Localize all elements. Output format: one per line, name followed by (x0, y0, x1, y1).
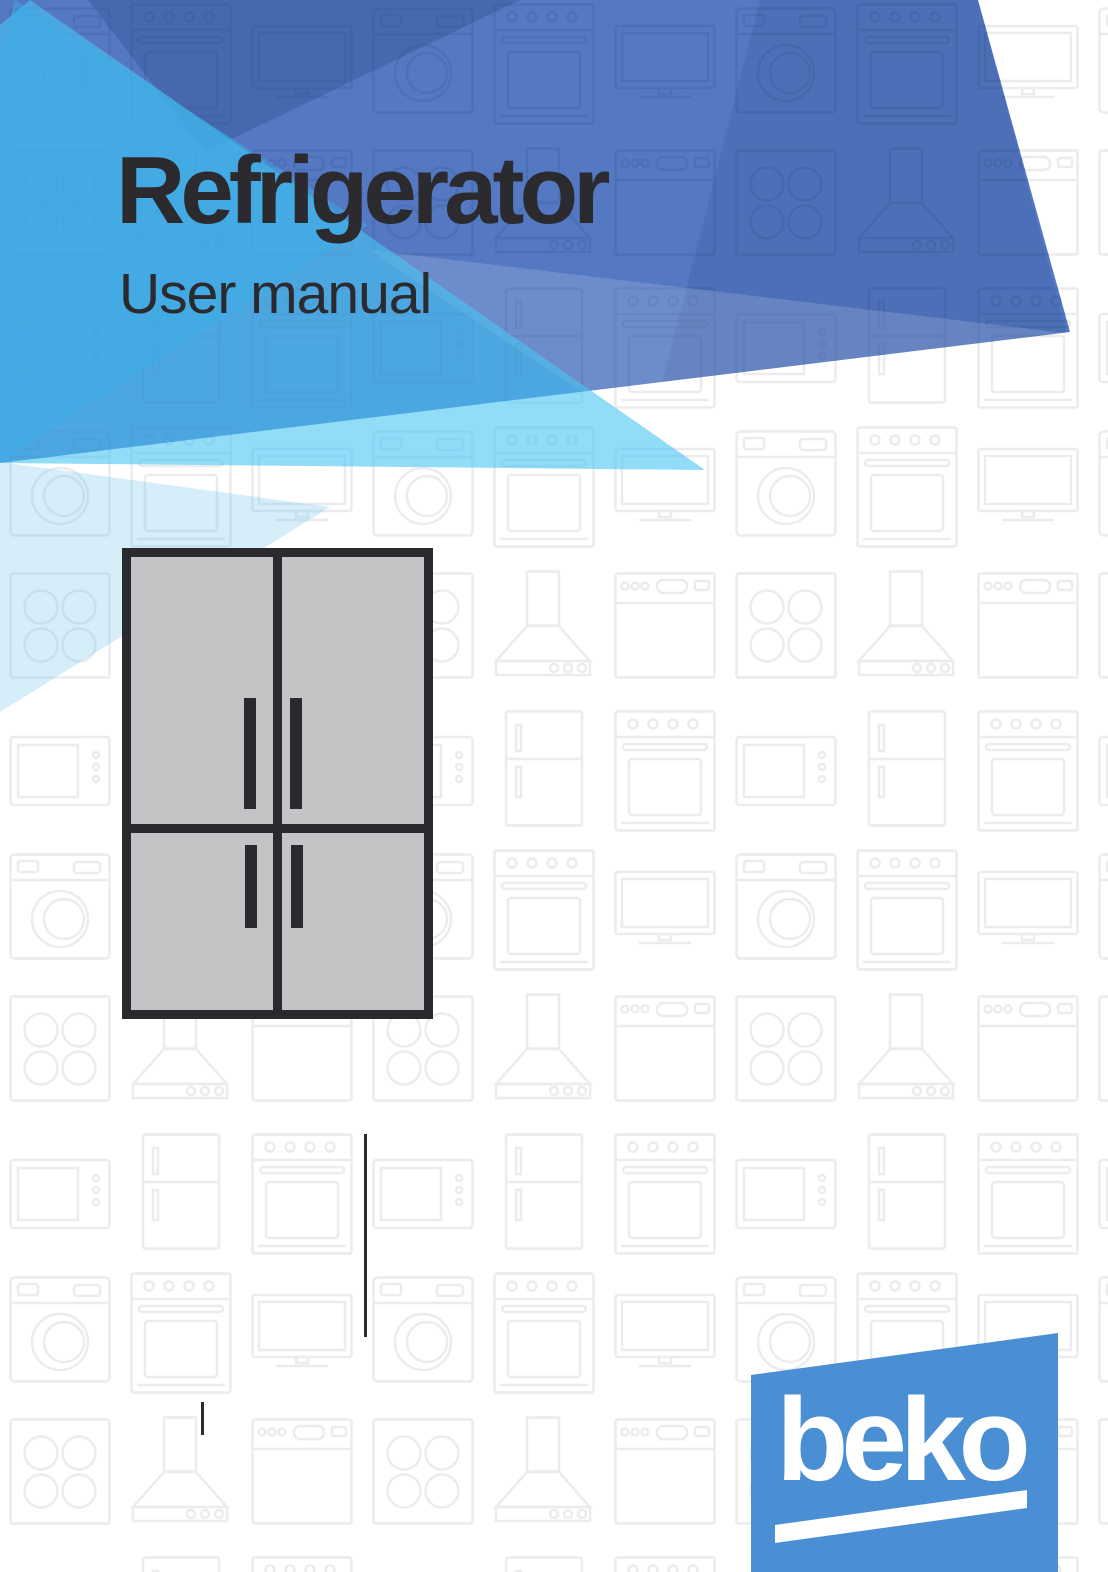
fridge-door-bottom-right (282, 833, 424, 1010)
page-title: Refrigerator (116, 138, 605, 244)
vertical-line-mark-long (364, 1134, 367, 1337)
page-subtitle: User manual (119, 262, 431, 328)
vertical-line-mark-short (201, 1402, 204, 1435)
fridge-handle-bottom-left (245, 845, 257, 928)
beko-logo-text: beko (776, 1374, 1026, 1506)
fridge-door-top-right (282, 557, 424, 824)
fridge-handle-bottom-right (291, 845, 303, 928)
fridge-handle-top-left (244, 698, 256, 809)
manual-cover-page: Refrigerator User manual beko (0, 0, 1108, 1572)
beko-logo: beko (740, 1325, 1058, 1572)
refrigerator-illustration (122, 548, 433, 1019)
fridge-handle-top-right (290, 698, 302, 809)
